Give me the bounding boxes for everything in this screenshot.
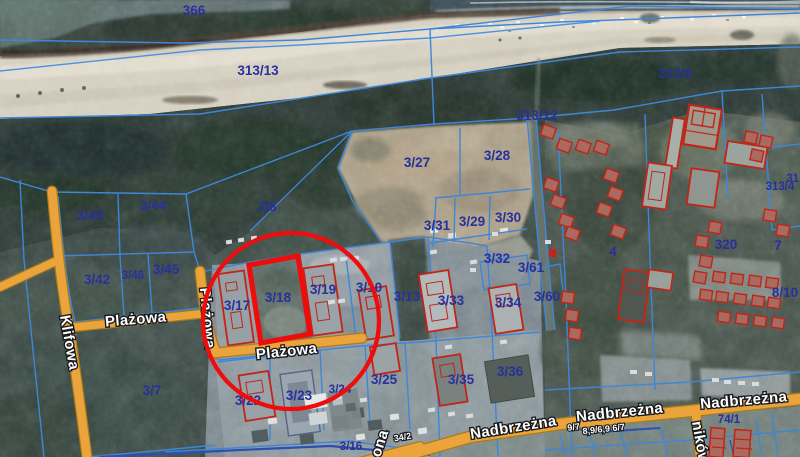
svg-text:3/36: 3/36 — [497, 364, 524, 379]
svg-text:313/9: 313/9 — [658, 66, 692, 81]
svg-text:7: 7 — [774, 238, 782, 253]
svg-text:313/13: 313/13 — [237, 63, 279, 78]
svg-text:3/42: 3/42 — [84, 272, 110, 287]
svg-text:3/19: 3/19 — [310, 282, 336, 297]
svg-text:3/13: 3/13 — [394, 289, 421, 304]
svg-text:4: 4 — [609, 244, 617, 259]
svg-text:3/35: 3/35 — [448, 372, 475, 387]
svg-text:3/17: 3/17 — [224, 298, 250, 313]
svg-text:3/27: 3/27 — [404, 155, 430, 170]
svg-text:313/12: 313/12 — [516, 108, 557, 123]
svg-text:3/34: 3/34 — [495, 295, 522, 310]
svg-text:3/31: 3/31 — [424, 218, 451, 233]
svg-text:3/33: 3/33 — [438, 293, 465, 308]
svg-text:3/32: 3/32 — [484, 251, 510, 266]
svg-text:3/7: 3/7 — [143, 383, 162, 398]
svg-text:3/46: 3/46 — [122, 270, 144, 282]
svg-text:3/23: 3/23 — [286, 388, 313, 403]
svg-text:3/45: 3/45 — [153, 262, 180, 277]
svg-text:3/28: 3/28 — [484, 148, 511, 163]
svg-text:3/25: 3/25 — [371, 372, 398, 387]
svg-text:8/10: 8/10 — [772, 285, 798, 300]
svg-text:3/44: 3/44 — [140, 198, 167, 213]
svg-text:3/8: 3/8 — [258, 199, 277, 214]
svg-text:3/29: 3/29 — [459, 214, 485, 229]
svg-text:3/18: 3/18 — [265, 290, 292, 305]
svg-text:9/7: 9/7 — [567, 421, 581, 433]
svg-text:3/60: 3/60 — [534, 289, 560, 304]
svg-text:3/30: 3/30 — [495, 210, 521, 225]
svg-text:3/16: 3/16 — [340, 441, 362, 453]
svg-text:320: 320 — [715, 237, 738, 252]
svg-text:366: 366 — [183, 3, 206, 18]
svg-text:74/1: 74/1 — [718, 414, 741, 426]
svg-text:3/43: 3/43 — [77, 208, 104, 223]
svg-text:315: 315 — [786, 173, 800, 185]
svg-text:3/61: 3/61 — [518, 260, 545, 275]
